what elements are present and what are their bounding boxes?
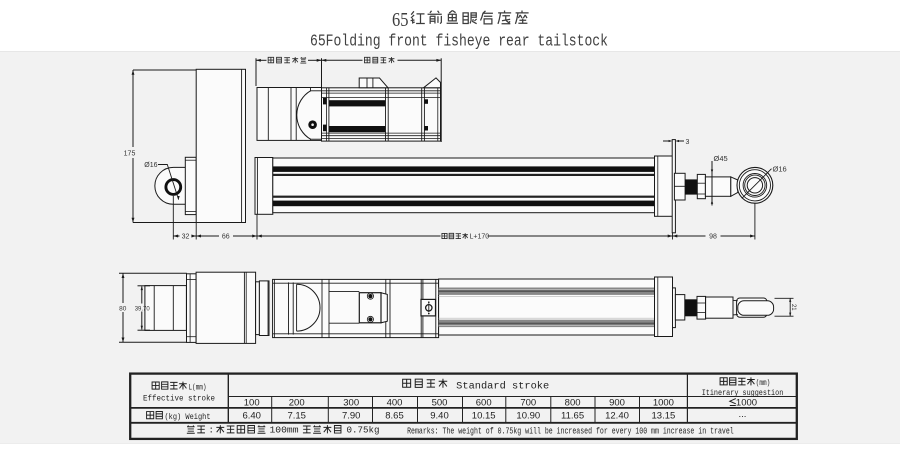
svg-text:600: 600 bbox=[476, 397, 492, 408]
svg-text:300: 300 bbox=[343, 397, 359, 408]
svg-text:100: 100 bbox=[244, 397, 260, 408]
svg-text:800: 800 bbox=[565, 397, 581, 408]
svg-text:10.90: 10.90 bbox=[516, 411, 540, 422]
svg-text:7.90: 7.90 bbox=[342, 411, 361, 422]
svg-text:Standard stroke: Standard stroke bbox=[456, 380, 549, 392]
svg-text:Ø45: Ø45 bbox=[714, 154, 728, 163]
svg-text:L(mm): L(mm) bbox=[189, 382, 207, 392]
svg-text:10.15: 10.15 bbox=[472, 411, 496, 422]
svg-text:500: 500 bbox=[432, 397, 448, 408]
svg-text:13.15: 13.15 bbox=[652, 411, 676, 422]
svg-text:(mm): (mm) bbox=[756, 379, 771, 388]
svg-text:Effective stroke: Effective stroke bbox=[143, 394, 215, 403]
svg-text:(kg) Weight: (kg) Weight bbox=[165, 412, 211, 422]
svg-text:700: 700 bbox=[520, 397, 536, 408]
svg-text:1000: 1000 bbox=[736, 397, 757, 408]
svg-text:L+170: L+170 bbox=[470, 233, 490, 240]
svg-text:175: 175 bbox=[124, 151, 136, 158]
svg-text:39.70: 39.70 bbox=[135, 306, 151, 312]
svg-text:Ø16: Ø16 bbox=[144, 162, 157, 169]
svg-text:3: 3 bbox=[686, 139, 690, 146]
svg-text:9.40: 9.40 bbox=[430, 411, 449, 422]
svg-text:200: 200 bbox=[289, 397, 305, 408]
svg-text:0.75kg: 0.75kg bbox=[347, 425, 380, 436]
svg-text::: : bbox=[209, 426, 214, 436]
svg-text:80: 80 bbox=[119, 305, 127, 312]
svg-text:...: ... bbox=[739, 409, 747, 420]
svg-text:Ø16: Ø16 bbox=[773, 165, 787, 174]
svg-text:11.65: 11.65 bbox=[561, 411, 584, 422]
svg-text:21: 21 bbox=[790, 304, 796, 311]
svg-text:900: 900 bbox=[609, 397, 625, 408]
svg-text:66: 66 bbox=[222, 234, 230, 241]
svg-text:400: 400 bbox=[387, 397, 403, 408]
svg-text:6.40: 6.40 bbox=[242, 411, 261, 422]
svg-text:12.40: 12.40 bbox=[605, 411, 629, 422]
svg-text:8.65: 8.65 bbox=[385, 411, 404, 422]
svg-text:32: 32 bbox=[182, 234, 190, 241]
svg-text:7.15: 7.15 bbox=[287, 411, 306, 422]
svg-text:65: 65 bbox=[392, 9, 409, 31]
svg-text:Remarks: The weight of 0.75kg: Remarks: The weight of 0.75kg will be in… bbox=[407, 426, 734, 436]
svg-text:1000: 1000 bbox=[653, 397, 674, 408]
svg-text:65Folding front fisheye rear t: 65Folding front fisheye rear tailstock bbox=[310, 32, 608, 51]
svg-text:100mm: 100mm bbox=[270, 425, 299, 436]
svg-text:98: 98 bbox=[709, 234, 717, 241]
